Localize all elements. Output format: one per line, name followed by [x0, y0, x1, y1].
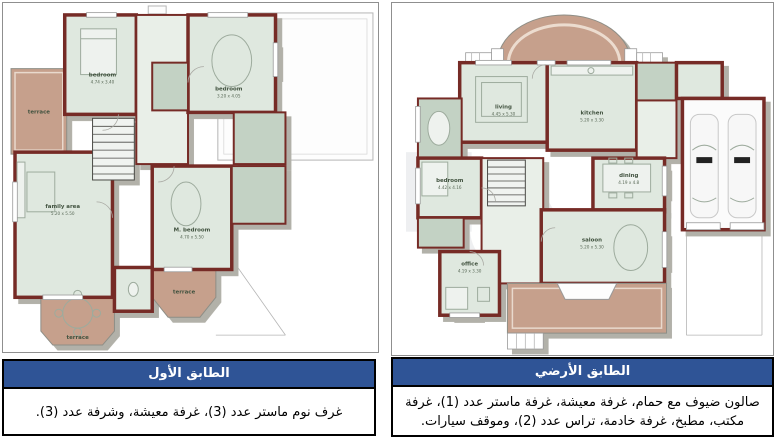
first-floor-plan-drawing: bedroom 4.74 x 3.40 bedroom 3.20 x 4.05 … [3, 3, 378, 352]
room-dims: 4.19 x 3.30 [458, 268, 482, 273]
ground-floor-title-bar: الطابق الأرضي [393, 359, 772, 387]
ground-floor-house: living 4.45 x 5.30 kitchen 5.20 x 3.30 d… [416, 15, 764, 349]
arch-terrace [466, 15, 663, 63]
room-label: bedroom [436, 178, 464, 184]
room-label: bedroom [89, 73, 117, 79]
car-icon [690, 114, 718, 217]
room-label: terrace [28, 109, 51, 115]
window-icon [662, 232, 667, 268]
room-label: bedroom [215, 86, 243, 92]
rear-terrace [507, 283, 666, 333]
ground-floor-description: صالون ضيوف مع حمام، غرفة معيشة، غرفة ماس… [393, 387, 772, 439]
first-floor-description: غرف نوم ماستر عدد (3)، غرفة معيشة، وشرفة… [4, 389, 374, 438]
corridor [637, 100, 677, 158]
master-bathroom [232, 166, 286, 224]
sofa-icon [17, 162, 25, 218]
room-dims: 4.70 x 5.50 [180, 235, 204, 240]
toilet-icon [128, 282, 138, 296]
first-floor-title-bar: الطابق الأول [4, 361, 374, 389]
room-dims: 5.20 x 3.30 [580, 117, 604, 122]
garage-door-icon [730, 223, 764, 230]
window-icon [273, 43, 278, 77]
guest-bathroom [637, 63, 677, 101]
stairs [93, 118, 135, 180]
garage-door-icon [686, 223, 720, 230]
car-icon [728, 114, 756, 217]
entry-door [537, 60, 555, 65]
room-label: office [461, 262, 478, 268]
room-dims: 4.19 x 4.8 [618, 180, 639, 185]
window-icon [416, 168, 421, 204]
first-floor-house: bedroom 4.74 x 3.40 bedroom 3.20 x 4.05 … [11, 13, 285, 345]
room-dims: 4.74 x 3.40 [91, 80, 115, 85]
closet [418, 218, 464, 248]
first-floor-plan-image: bedroom 4.74 x 3.40 bedroom 3.20 x 4.05 … [2, 2, 379, 353]
room-label: living [495, 104, 512, 110]
first-floor-caption: الطابق الأول غرف نوم ماستر عدد (3)، غرفة… [2, 359, 376, 436]
window-icon [87, 13, 117, 18]
room-dims: 4.45 x 5.30 [492, 111, 516, 116]
room-label: family area [45, 204, 80, 210]
driveway-outline [686, 230, 762, 335]
window-icon [450, 313, 480, 318]
window-icon [662, 166, 667, 196]
bathroom2 [234, 112, 286, 164]
window-icon [164, 267, 192, 272]
room-dims: 3.20 x 4.05 [217, 93, 241, 98]
ground-floor-plan-image: living 4.45 x 5.30 kitchen 5.20 x 3.30 d… [391, 2, 774, 356]
window-icon [208, 13, 248, 18]
room-label: saloon [582, 238, 602, 244]
maid-room [676, 63, 722, 99]
ground-floor-plan-drawing: living 4.45 x 5.30 kitchen 5.20 x 3.30 d… [392, 3, 773, 355]
window-icon [13, 182, 18, 222]
room-kitchen [547, 63, 636, 151]
window-icon [567, 60, 611, 65]
ground-floor-title: الطابق الأرضي [535, 364, 630, 379]
window-icon [416, 106, 421, 142]
bed-icon [81, 29, 117, 75]
ground-floor-caption: الطابق الأرضي صالون ضيوف مع حمام، غرفة م… [391, 357, 774, 437]
room-label: terrace [173, 289, 196, 295]
room-master-bedroom [152, 166, 232, 269]
room-dims: 4.42 x 4.16 [438, 185, 462, 190]
entry-steps [507, 333, 543, 349]
room-dims: 5.20 x 5.50 [51, 211, 75, 216]
room-label: kitchen [581, 110, 604, 116]
first-floor-title: الطابق الأول [148, 366, 230, 381]
bathroom1 [152, 63, 188, 111]
room-label: M. bedroom [174, 228, 211, 234]
room-label: dining [619, 173, 638, 179]
room-living [460, 63, 548, 143]
room-label: terrace [66, 335, 89, 341]
kitchen-counter-icon [551, 66, 633, 75]
window-icon [43, 295, 83, 300]
window-icon [476, 60, 512, 65]
room-dims: 5.20 x 5.30 [580, 245, 604, 250]
stairs [488, 160, 526, 206]
bathtub-icon [428, 111, 450, 145]
